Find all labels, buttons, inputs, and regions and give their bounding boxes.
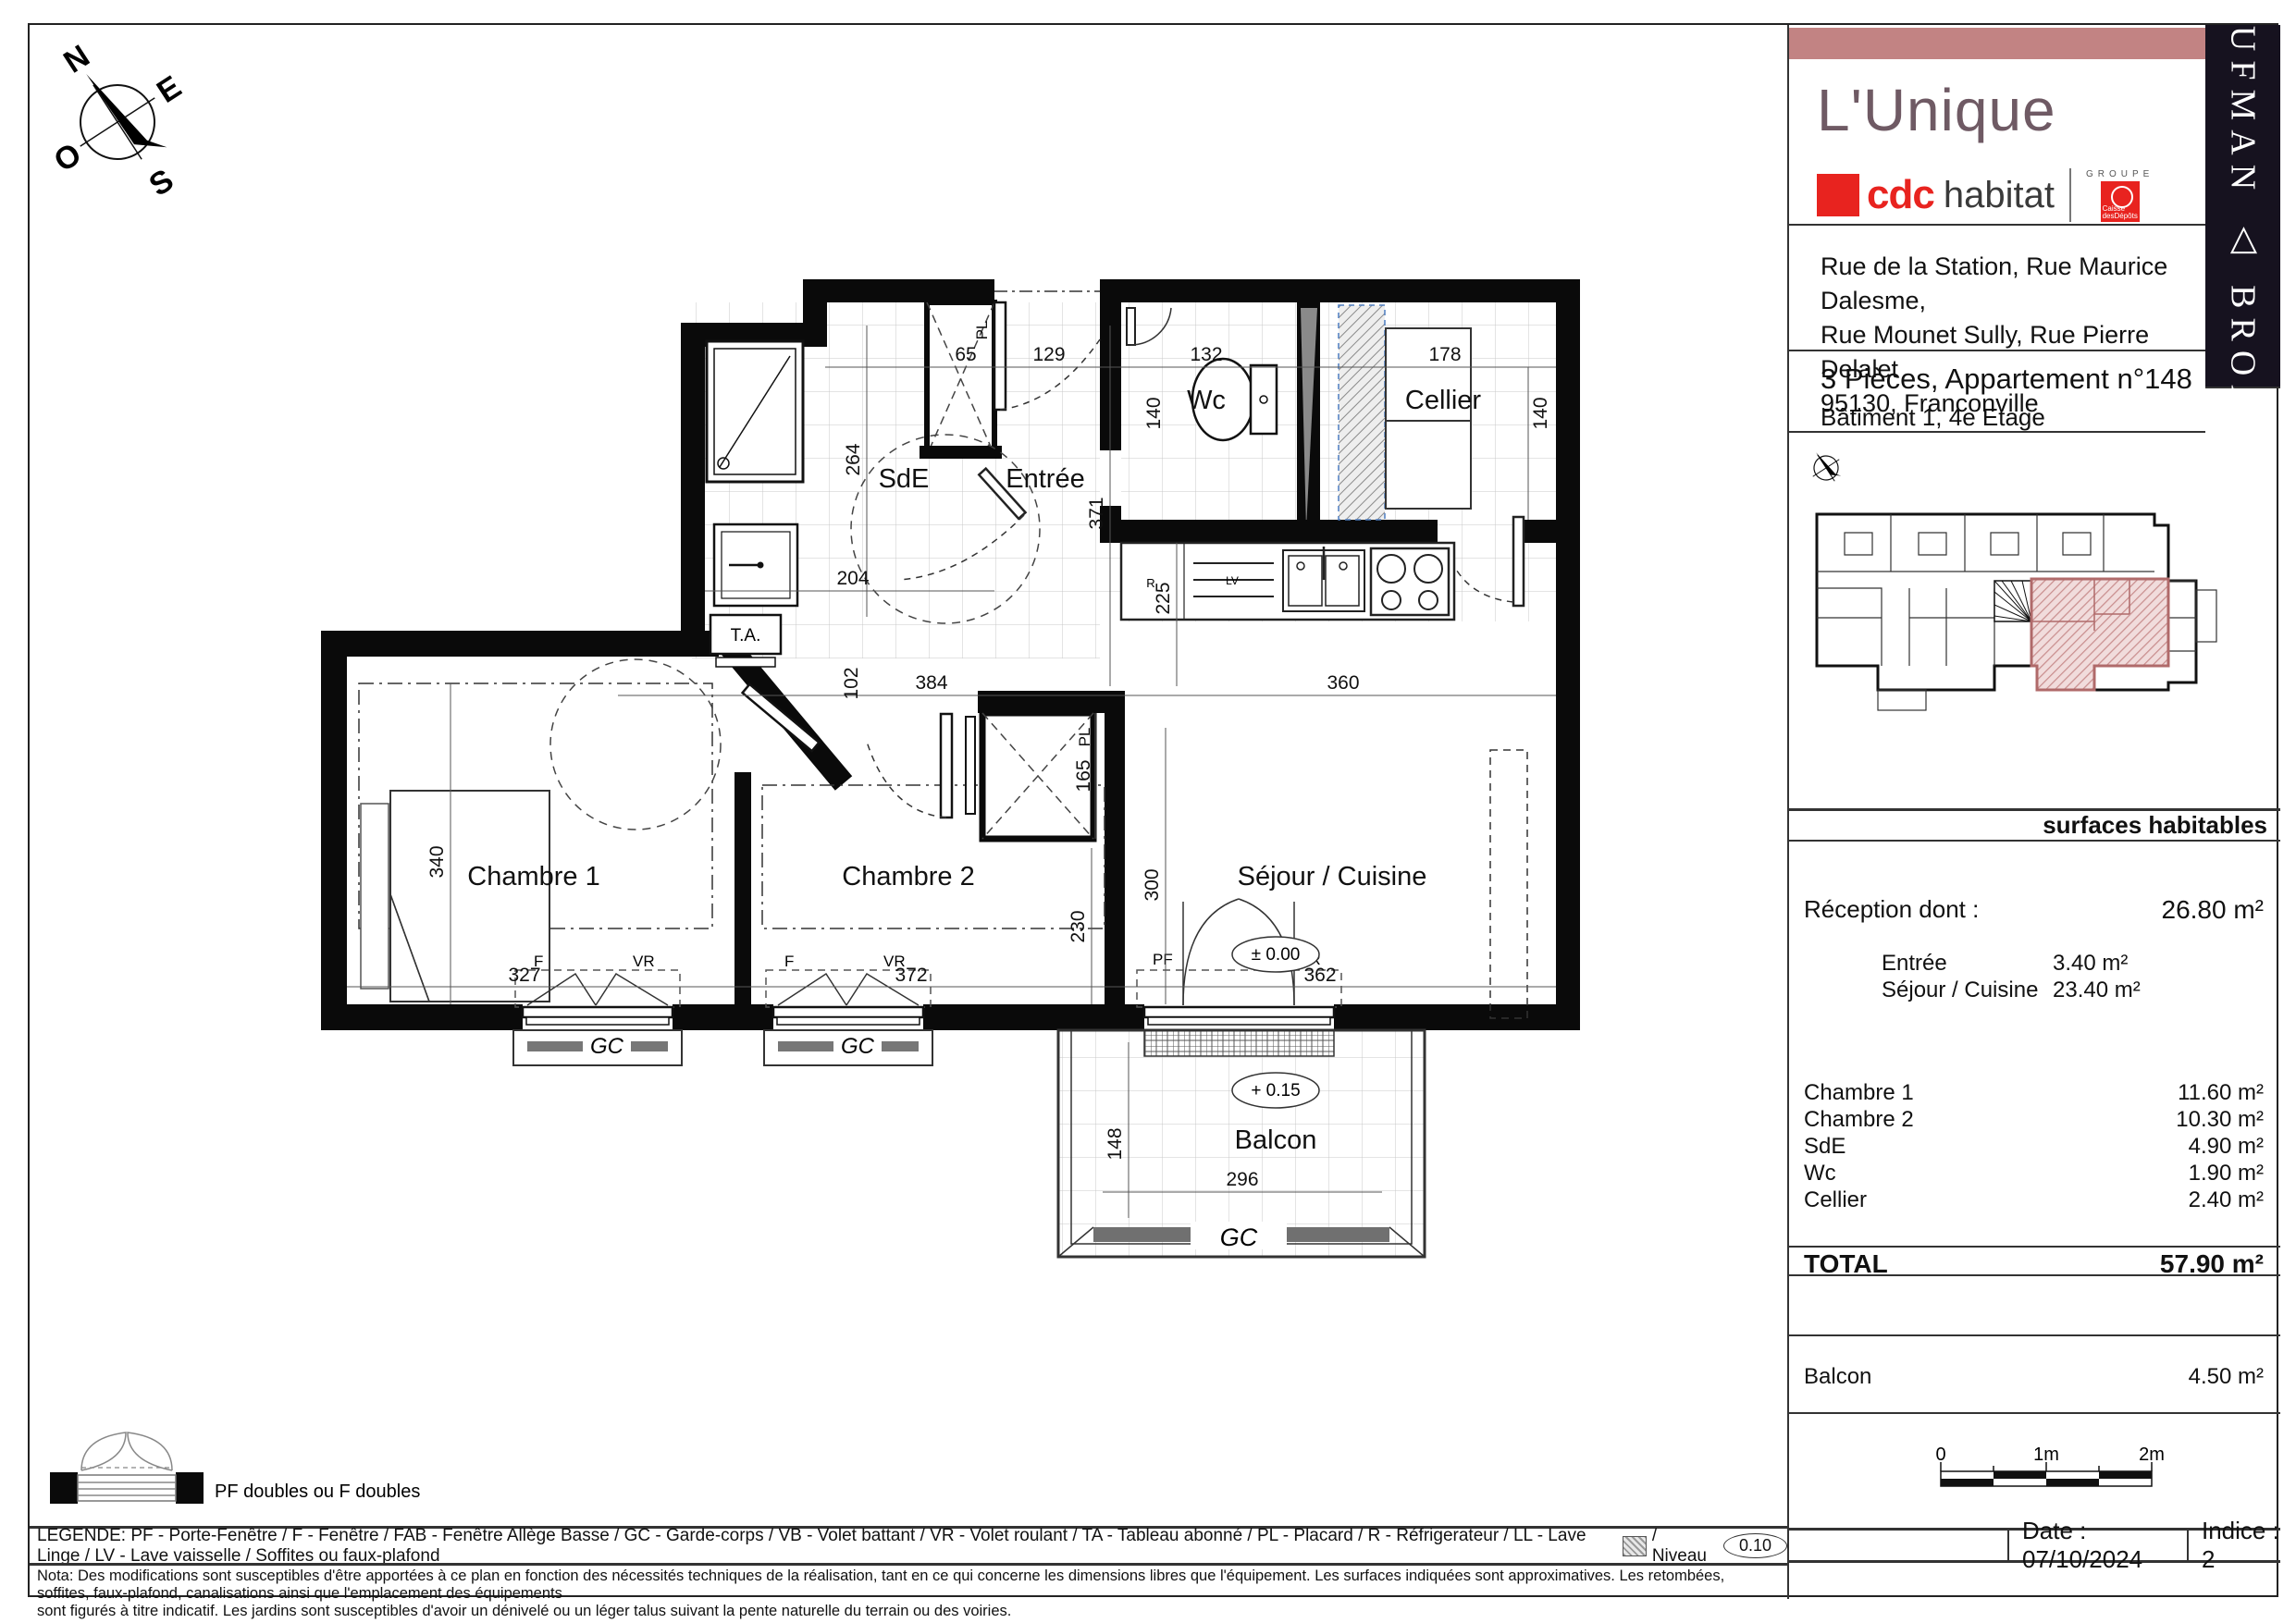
pf-doubles-label: PF doubles ou F doubles <box>215 1482 420 1502</box>
row-value: 1.90 m² <box>2189 1161 2264 1187</box>
row-label: Entrée <box>1882 951 1947 977</box>
apartment-box: 3 Pièces, Appartement n°148 Bâtiment 1, … <box>1789 351 2205 433</box>
svg-text:PL: PL <box>973 321 991 340</box>
soffit-swatch-icon <box>1623 1536 1647 1556</box>
svg-text:360: 360 <box>1327 672 1359 694</box>
svg-text:N: N <box>57 38 95 80</box>
surfaces-band: surfaces habitables <box>1789 808 2280 842</box>
reception-value: 26.80 m² <box>2162 895 2265 925</box>
svg-text:0: 0 <box>1935 1445 1945 1465</box>
svg-text:165: 165 <box>1073 759 1094 792</box>
spacer-box <box>1789 1276 2280 1336</box>
niveau-oval: 0.10 <box>1723 1533 1787 1558</box>
svg-text:GC: GC <box>1220 1223 1258 1251</box>
row-label: Séjour / Cuisine <box>1882 977 2038 1003</box>
address-line1: Rue de la Station, Rue Maurice Dalesme, <box>1821 250 2205 318</box>
svg-text:230: 230 <box>1068 910 1089 942</box>
row-label: Chambre 2 <box>1804 1107 1914 1133</box>
svg-text:T.A.: T.A. <box>731 626 761 646</box>
reception-label: Réception dont : <box>1804 895 1979 924</box>
scalebar-box: 0 1m 2m <box>1789 1414 2280 1528</box>
cdc-habitat-text: habitat <box>1944 175 2055 216</box>
svg-text:204: 204 <box>836 568 869 589</box>
keyplan-drawing <box>1789 433 2280 808</box>
balcon-row: Balcon 4.50 m² <box>1789 1336 2280 1414</box>
surfaces-title: surfaces habitables <box>2043 811 2267 840</box>
legend-niveau: / Niveau <box>1652 1526 1707 1567</box>
keyplan-stair <box>1994 581 2031 621</box>
svg-text:140: 140 <box>1530 397 1551 429</box>
svg-text:129: 129 <box>1032 344 1065 365</box>
svg-text:225: 225 <box>1153 582 1174 614</box>
row-value: 2.40 m² <box>2189 1187 2264 1213</box>
svg-text:± 0.00: ± 0.00 <box>1252 945 1301 965</box>
floorplan-drawing: N E S O <box>30 25 1787 1523</box>
svg-text:264: 264 <box>843 443 864 475</box>
indice-value: Indice : 2 <box>2202 1517 2280 1574</box>
total-row: TOTAL 57.90 m² <box>1789 1246 2280 1276</box>
row-label: Wc <box>1804 1161 1836 1187</box>
sheet-frame: N E S O <box>28 23 2278 1597</box>
svg-text:296: 296 <box>1226 1169 1258 1190</box>
svg-text:O: O <box>48 136 88 178</box>
svg-text:Wc: Wc <box>1187 386 1226 415</box>
svg-text:PF: PF <box>1153 951 1173 968</box>
nota-line2: sont figurés à titre indicatif. Les jard… <box>37 1603 1780 1620</box>
shower <box>707 341 803 482</box>
svg-text:148: 148 <box>1105 1127 1126 1160</box>
svg-text:F: F <box>784 953 794 970</box>
washbasin <box>714 524 797 606</box>
total-value: 57.90 m² <box>2160 1249 2264 1279</box>
svg-text:S: S <box>143 163 180 203</box>
row-value: 11.60 m² <box>2178 1080 2264 1106</box>
svg-text:340: 340 <box>426 845 448 878</box>
row-value: 23.40 m² <box>2053 977 2141 1003</box>
kaufman-broad-strip: KAUFMAN △ BROAD <box>2205 25 2280 388</box>
legend-row: LEGENDE: PF - Porte-Fenêtre / F - Fenêtr… <box>30 1526 1787 1563</box>
svg-text:132: 132 <box>1190 344 1222 365</box>
row-label: Cellier <box>1804 1187 1867 1213</box>
balcon-value: 4.50 m² <box>2189 1364 2264 1390</box>
date-cell: Date : 07/10/2024 <box>2007 1531 2187 1560</box>
svg-text:327: 327 <box>508 965 540 986</box>
row-label: SdE <box>1804 1134 1845 1160</box>
caisse-depots-logo: GROUPE CaissedesDépôts <box>2086 169 2154 222</box>
header-pink-bar <box>1789 28 2205 59</box>
svg-text:372: 372 <box>895 965 927 986</box>
nota-line1: Nota: Des modifications sont susceptible… <box>37 1568 1780 1603</box>
svg-text:300: 300 <box>1142 868 1163 901</box>
cellier-soffit <box>1339 305 1385 520</box>
total-label: TOTAL <box>1804 1249 1888 1279</box>
svg-text:65: 65 <box>955 344 976 365</box>
svg-text:Balcon: Balcon <box>1235 1125 1317 1155</box>
svg-text:Entrée: Entrée <box>1006 464 1084 494</box>
svg-text:Chambre 1: Chambre 1 <box>467 862 599 891</box>
legend-text: LEGENDE: PF - Porte-Fenêtre / F - Fenêtr… <box>37 1526 1617 1567</box>
svg-text:371: 371 <box>1086 497 1107 529</box>
hob <box>1371 548 1449 615</box>
cdc-logo-text: cdc <box>1867 172 1934 218</box>
svg-text:362: 362 <box>1303 965 1336 986</box>
floorplan-sheet: { "header": { "project": "L'Unique", "br… <box>0 0 2296 1623</box>
row-label: Chambre 1 <box>1804 1080 1914 1106</box>
scalebar: 0 1m 2m <box>1906 1444 2165 1499</box>
svg-text:PL: PL <box>1076 728 1093 747</box>
svg-text:384: 384 <box>915 672 947 694</box>
svg-text:Cellier: Cellier <box>1405 386 1482 415</box>
svg-text:Séjour / Cuisine: Séjour / Cuisine <box>1238 862 1427 891</box>
row-value: 4.90 m² <box>2189 1134 2264 1160</box>
svg-text:1m: 1m <box>2033 1445 2059 1465</box>
kaufman-broad-logo: KAUFMAN △ BROAD <box>2223 0 2264 455</box>
svg-text:140: 140 <box>1143 397 1165 429</box>
nota-row: Nota: Des modifications sont susceptible… <box>30 1563 1787 1599</box>
titleblock-footer-row: Date : 07/10/2024 Indice : 2 <box>1789 1528 2280 1563</box>
svg-text:2m: 2m <box>2139 1445 2165 1465</box>
svg-text:GC: GC <box>841 1034 875 1059</box>
svg-text:LV: LV <box>1226 574 1239 587</box>
svg-text:178: 178 <box>1428 344 1461 365</box>
balcon-label: Balcon <box>1804 1364 1871 1390</box>
cdc-logo-square <box>1817 174 1859 216</box>
row-value: 3.40 m² <box>2053 951 2128 977</box>
address-box: Rue de la Station, Rue Maurice Dalesme, … <box>1789 226 2205 351</box>
svg-text:SdE: SdE <box>879 464 930 494</box>
apartment-floor: Bâtiment 1, 4e Etage <box>1789 396 2205 432</box>
project-title: L'Unique <box>1817 76 2056 144</box>
project-title-box: L'Unique cdc habitat GROUPE CaissedesDép… <box>1789 59 2205 226</box>
surfaces-table: Réception dont : 26.80 m² Entrée 3.40 m²… <box>1789 842 2280 1246</box>
date-value: Date : 07/10/2024 <box>2022 1517 2187 1574</box>
keyplan-compass-icon <box>1803 444 1848 490</box>
svg-text:102: 102 <box>841 667 862 699</box>
chambre2-door <box>867 714 952 818</box>
keyplan-unit-highlight <box>2031 579 2168 690</box>
svg-text:VR: VR <box>633 953 655 970</box>
row-value: 10.30 m² <box>2176 1107 2264 1133</box>
svg-text:Chambre 2: Chambre 2 <box>842 862 974 891</box>
svg-text:+ 0.15: + 0.15 <box>1251 1081 1300 1100</box>
keyplan-box <box>1789 433 2280 808</box>
pf-doubles-icon <box>50 1432 204 1504</box>
svg-text:E: E <box>151 69 188 110</box>
svg-text:GC: GC <box>590 1034 624 1059</box>
logo-separator <box>2069 168 2071 222</box>
apartment-title: 3 Pièces, Appartement n°148 <box>1789 351 2205 396</box>
indice-cell: Indice : 2 <box>2187 1531 2280 1560</box>
compass-rose: N E S O <box>30 25 228 240</box>
ta-box: T.A. <box>710 615 781 667</box>
